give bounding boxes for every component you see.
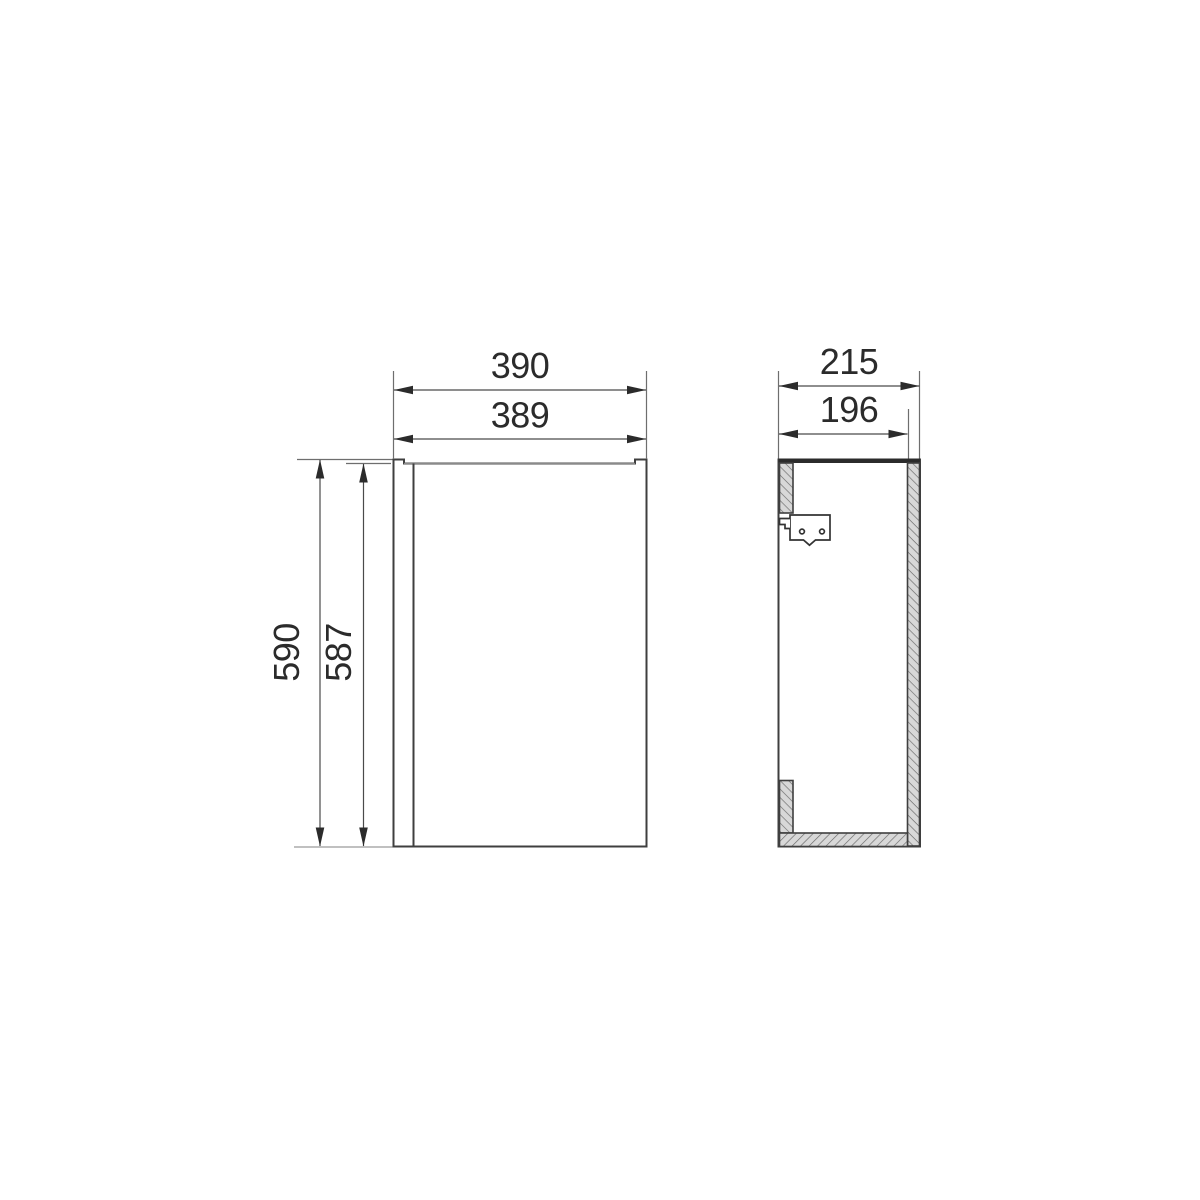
- front-cabinet-outline: [394, 460, 647, 847]
- dim-label-height-total: 590: [266, 623, 307, 682]
- arrowhead-left-icon: [394, 435, 413, 444]
- side-top-panel-edge: [779, 459, 921, 464]
- arrowhead-down-icon: [316, 828, 325, 847]
- front-view: [394, 460, 647, 847]
- dim-front-height-door: 587: [318, 464, 391, 847]
- side-front-top-rail-section: [780, 463, 794, 513]
- dim-label-width-total: 390: [491, 345, 550, 386]
- side-front-bottom-rail-section: [780, 781, 794, 834]
- dim-label-height-door: 587: [318, 623, 359, 682]
- side-view: [779, 459, 921, 847]
- arrowhead-right-icon: [627, 386, 646, 395]
- cabinet-dimension-drawing: 390 389 590 587: [0, 0, 1200, 1200]
- arrowhead-down-icon: [359, 828, 368, 847]
- dim-label-depth-total: 215: [820, 341, 879, 382]
- arrowhead-up-icon: [359, 464, 368, 483]
- arrowhead-left-icon: [779, 430, 798, 439]
- arrowhead-up-icon: [316, 460, 325, 479]
- technical-drawing-canvas: 390 389 590 587: [0, 0, 1200, 1200]
- hinge-screw-hole-left-icon: [800, 529, 805, 534]
- side-bottom-panel-section: [780, 833, 908, 847]
- arrowhead-right-icon: [627, 435, 646, 444]
- arrowhead-right-icon: [901, 382, 920, 391]
- side-back-panel-section: [908, 463, 920, 846]
- dim-label-depth-body: 196: [820, 389, 879, 430]
- arrowhead-right-icon: [889, 430, 908, 439]
- dim-label-width-door: 389: [491, 395, 550, 436]
- arrowhead-left-icon: [394, 386, 413, 395]
- dim-side-depth-body: 196: [779, 389, 909, 459]
- hinge-screw-hole-right-icon: [820, 529, 825, 534]
- dim-front-width-door: 389: [394, 395, 646, 444]
- arrowhead-left-icon: [779, 382, 798, 391]
